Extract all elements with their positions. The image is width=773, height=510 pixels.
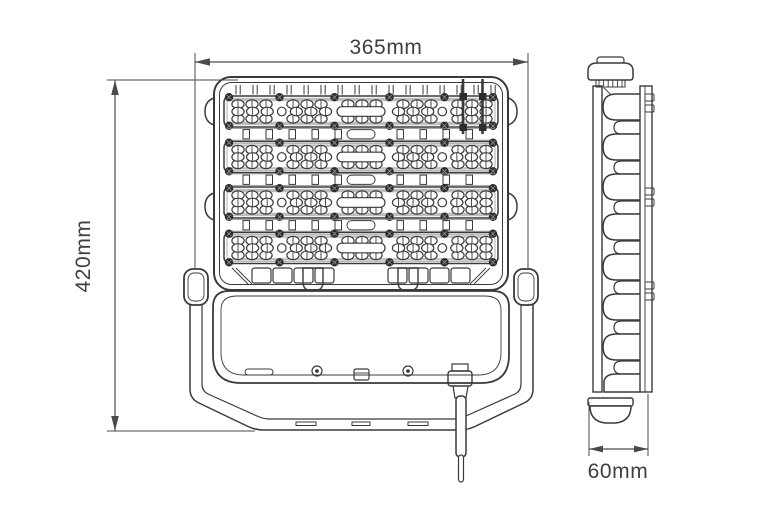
pivot-boss-right [514, 269, 538, 305]
side-bezel [640, 86, 652, 392]
heatsink-fin [603, 214, 640, 240]
width-dimension-label: 365mm [349, 36, 422, 59]
pivot-boss-left [184, 269, 208, 305]
center-slot [337, 107, 385, 117]
heatsink-fin [603, 134, 640, 160]
heatsink-fin [603, 174, 640, 200]
heatsink-fin [603, 334, 640, 360]
center-slot [337, 198, 385, 208]
height-dimension-label: 420mm [72, 219, 95, 292]
heatsink-fin [603, 94, 640, 120]
heatsink-fin [603, 294, 640, 320]
side-view [588, 57, 654, 423]
back-box [213, 291, 509, 398]
center-slot [337, 152, 385, 162]
center-slot [337, 243, 385, 253]
head-trim [232, 268, 490, 291]
drawing-canvas: 365mm 420mm 60mm [0, 0, 773, 510]
side-fins [599, 81, 640, 393]
depth-dimension-label: 60mm [588, 460, 649, 483]
led-panel [224, 85, 498, 266]
heatsink-fin [603, 254, 640, 280]
bottom-knob [588, 398, 633, 423]
hinge-lug-right [398, 268, 418, 291]
power-cable [456, 396, 466, 482]
top-knob [588, 57, 633, 87]
front-view [184, 77, 538, 482]
technical-drawing: 365mm 420mm 60mm [0, 0, 773, 510]
